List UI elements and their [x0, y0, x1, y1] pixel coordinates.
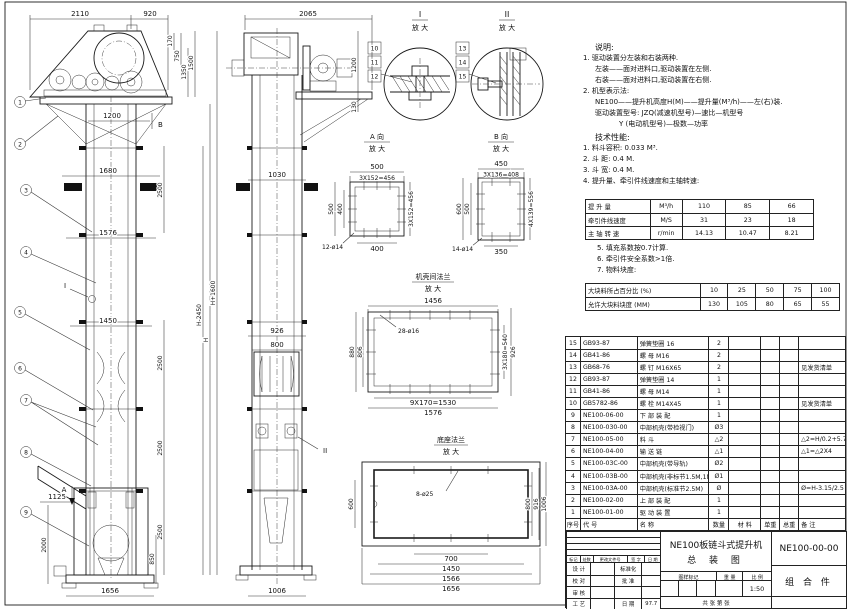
table-cell [760, 422, 779, 433]
table-cell [728, 350, 760, 361]
dim-label: 1680 [99, 167, 117, 175]
table-cell [760, 458, 779, 469]
dim-label: 2065 [299, 10, 317, 18]
title-block-empty-cell [771, 596, 847, 609]
table-row: 允许大块料块度 (MM)130105806555 [586, 297, 839, 310]
front-view-dim-labels: 2110 920 1200 B 1680 1576 1450 2500 2500… [41, 10, 217, 595]
weight-value-cell [715, 580, 743, 597]
mark-box-3 [696, 580, 716, 597]
table-cell: 见发货清单 [798, 398, 845, 409]
table-cell: NE100-06-00 [580, 410, 637, 421]
table-row: 11GB41-86螺 母 M141 [566, 385, 845, 397]
detail-title: II [505, 10, 510, 19]
balloon: 3 [24, 188, 28, 195]
table-cell: 螺 钉 M16X65 [637, 362, 709, 373]
table-cell [779, 507, 798, 518]
table-cell: NE100-02-00 [580, 495, 637, 506]
table-cell [798, 337, 845, 349]
dim-label: 926 [270, 327, 284, 335]
table-cell: 弹簧垫圈 16 [637, 337, 709, 349]
dim-label: 1350 [181, 64, 188, 79]
table-row: 8NE100-030-00中部机壳(带检视门)Ø3 [566, 421, 845, 433]
table-cell [641, 563, 660, 575]
table-cell: 材 料 [728, 519, 760, 530]
table-cell: 1 [566, 507, 580, 518]
mark-box-1 [660, 580, 679, 597]
note-line: 驱动装置型号: JZQ(减速机型号)—速比—机型号 [583, 108, 845, 119]
table-cell: 14.13 [682, 227, 726, 239]
table-cell: 中部机壳(带导轨) [637, 458, 709, 469]
post-notes-block: 5. 填充系数按0.7计算.6. 牵引件安全系数>1倍.7. 物料块度: [597, 243, 837, 276]
table-cell: NE100-03B-00 [580, 471, 637, 482]
table-cell: 批 准 [614, 576, 641, 587]
table-cell: 110 [682, 200, 726, 213]
table-cell [779, 350, 798, 361]
table-cell: 10.47 [725, 227, 769, 239]
table-cell: 97.7 [641, 599, 660, 609]
drawing-sheet: 2110 920 1200 B 1680 1576 1450 2500 2500… [0, 0, 850, 609]
view-title: 底座法兰 [437, 435, 465, 444]
drawing-number-cell: NE100-00-00 [771, 531, 847, 566]
notes-block: 说明:1. 驱动装置分左装和右装两种.左装——面对进料口,驱动装置在左侧.右装—… [583, 40, 845, 187]
dim-label: 1006 [541, 496, 548, 511]
balloon: 11 [371, 60, 379, 67]
table-cell: GB41-86 [580, 386, 637, 397]
view-title: 机壳间法兰 [416, 272, 451, 281]
dim-label: 750 [174, 50, 181, 62]
view-title: A 向 [370, 132, 384, 141]
table-cell: NE100-03A-00 [580, 483, 637, 494]
table-cell: 80 [755, 298, 783, 310]
table-cell: 13 [566, 362, 580, 373]
table-row: 大块料所占百分比 (%)10255075100 [586, 284, 839, 297]
side-view-dim-labels: 2065 1200 130 1030 926 800 1006 II [268, 10, 358, 595]
table-cell: 输 送 链 [637, 446, 709, 457]
table-cell: 中部机壳(带检视门) [637, 422, 709, 433]
dim-label: 3X136=408 [483, 172, 519, 179]
note-line: 右装——面对进料口,驱动装置在右侧. [583, 75, 845, 86]
table-cell: 2 [566, 495, 580, 506]
table-cell [728, 495, 760, 506]
dim-label: 170 [167, 35, 174, 47]
table-cell [728, 483, 760, 494]
balloon: 13 [459, 46, 467, 53]
table-cell [798, 374, 845, 385]
table-cell [779, 410, 798, 421]
speed-table: 提 升 量M³/h1108566牵引件线速度M/S312318主 轴 转 速r/… [585, 199, 814, 240]
table-row: 5NE100-03C-00中部机壳(带导轨)Ø2 [566, 457, 845, 469]
table-cell [779, 495, 798, 506]
table-cell [760, 374, 779, 385]
table-cell [641, 576, 660, 587]
table-cell [798, 422, 845, 433]
dim-label: 2500 [157, 182, 164, 197]
table-cell: 校 对 [567, 576, 590, 587]
dim-label: 1006 [268, 587, 286, 595]
table-cell: 螺 母 M14 [637, 386, 709, 397]
table-cell: 14 [566, 350, 580, 361]
dim-label: 916 [533, 498, 540, 510]
table-cell: 85 [725, 200, 769, 213]
table-cell [760, 386, 779, 397]
table-cell: 名 称 [637, 519, 709, 530]
note-line: 2. 斗 距: 0.4 M. [583, 154, 845, 165]
note-line: 1. 驱动装置分左装和右装两种. [583, 53, 845, 64]
table-cell [760, 398, 779, 409]
balloon: 2 [18, 142, 22, 149]
table-cell [728, 507, 760, 518]
table-cell [728, 410, 760, 421]
dim-label: 1576 [99, 229, 117, 237]
table-cell [779, 374, 798, 385]
table-cell: 牵引件线速度 [586, 214, 650, 226]
balloon: 5 [18, 310, 22, 317]
table-cell: 见发货清单 [798, 362, 845, 373]
table-cell: Ø=H-3.15/2.5 [798, 483, 845, 494]
dim-label: H [203, 338, 210, 343]
view-subtitle: 放 大 [443, 447, 459, 456]
table-cell: 25 [727, 284, 755, 297]
title-block-blank-rows [566, 531, 661, 556]
table-cell: Ø [708, 483, 728, 494]
dim-label: 1450 [99, 317, 117, 325]
table-cell: NE100-04-00 [580, 446, 637, 457]
dim-label: 1200 [103, 112, 121, 120]
table-cell: 18 [769, 214, 813, 226]
table-cell: GB68-76 [580, 362, 637, 373]
note-line: 说明: [583, 40, 845, 53]
table-row: 审 核 [567, 586, 660, 598]
note-line: 5. 填充系数按0.7计算. [597, 243, 837, 254]
table-row: 10GB5782-86螺 栓 M14X451见发货清单 [566, 397, 845, 409]
table-cell [798, 507, 845, 518]
table-row: 主 轴 转 速r/min14.1310.478.21 [586, 226, 813, 239]
drawing-subtitle: 总 装 图 [687, 553, 745, 566]
table-cell: 主 轴 转 速 [586, 227, 650, 239]
hole-callout: 14-ø14 [452, 246, 473, 253]
table-cell [728, 422, 760, 433]
table-cell: 2 [708, 362, 728, 373]
lump-size-table: 大块料所占百分比 (%)10255075100允许大块料块度 (MM)13010… [585, 283, 840, 311]
dim-label: 9X170=1530 [410, 399, 456, 407]
dim-label: 1500 [188, 55, 195, 70]
table-cell: 工 艺 [567, 599, 590, 609]
table-cell [798, 458, 845, 469]
dim-label: 1566 [442, 575, 460, 583]
table-cell: 1 [708, 410, 728, 421]
detail-subtitle: 放 大 [499, 23, 515, 32]
detail-subtitle: 放 大 [412, 23, 428, 32]
table-cell: 105 [727, 298, 755, 310]
dim-label: 1200 [351, 57, 358, 72]
table-cell [798, 495, 845, 506]
table-cell: 单重 [760, 519, 779, 530]
table-cell [728, 362, 760, 373]
mark-box-2 [678, 580, 697, 597]
hole-callout: 8-ø25 [416, 491, 433, 498]
table-cell: 螺 栓 M14X45 [637, 398, 709, 409]
dim-label: 350 [494, 248, 507, 256]
dim-label: 400 [337, 203, 344, 215]
drawing-title: NE100板链斗式提升机 [670, 538, 763, 551]
table-cell: 50 [755, 284, 783, 297]
table-cell: NE100-03C-00 [580, 458, 637, 469]
table-cell: 55 [811, 298, 839, 310]
table-cell [590, 587, 614, 598]
dim-label: 800 [270, 341, 283, 349]
dim-label: 500 [464, 203, 471, 215]
view-title: B 向 [494, 132, 508, 141]
table-cell: Ø1 [708, 471, 728, 482]
section-b-marker: B [158, 121, 163, 129]
table-row: 13GB68-76螺 钉 M16X652见发货清单 [566, 361, 845, 373]
table-cell: 65 [783, 298, 811, 310]
table-cell: GB93-87 [580, 337, 637, 349]
table-cell: 2 [708, 337, 728, 349]
table-cell: 螺 母 M16 [637, 350, 709, 361]
table-cell [728, 458, 760, 469]
note-line: 7. 物料块度: [597, 265, 837, 276]
table-cell: 10 [566, 398, 580, 409]
table-cell [728, 386, 760, 397]
table-cell [728, 446, 760, 457]
table-cell: 大块料所占百分比 (%) [586, 284, 700, 297]
note-line: 6. 牵引件安全系数>1倍. [597, 254, 837, 265]
table-cell: 130 [700, 298, 728, 310]
table-cell: 75 [783, 284, 811, 297]
view-subtitle: 放 大 [425, 284, 441, 293]
dim-label: 1576 [424, 409, 442, 417]
dim-label: 2110 [71, 10, 89, 18]
note-line: 技术性能: [583, 130, 845, 143]
table-cell: 总重 [779, 519, 798, 530]
table-cell: 4 [566, 471, 580, 482]
table-row: 2NE100-02-00上 部 装 配1 [566, 494, 845, 506]
table-cell: 日 期 [614, 599, 641, 609]
table-cell: 中部机壳(标准节2.5M) [637, 483, 709, 494]
table-cell [779, 362, 798, 373]
table-row: 12GB93-87弹簧垫圈 141 [566, 373, 845, 385]
scale-value-cell: 1:50 [742, 580, 772, 597]
table-cell: 允许大块料块度 (MM) [586, 298, 700, 310]
table-row: 序号代 号名 称数量材 料单重总重备 注 [566, 518, 845, 530]
table-cell: 料 斗 [637, 434, 709, 445]
table-row: 15GB93-87弹簧垫圈 162 [566, 337, 845, 349]
table-cell [779, 398, 798, 409]
table-cell: 1 [708, 398, 728, 409]
drawing-title-box: NE100板链斗式提升机 总 装 图 [660, 531, 772, 572]
base-view: 底座法兰 放 大 8-ø25 600 800 916 1006 700 1450… [348, 435, 548, 593]
balloon: 7 [24, 398, 28, 405]
table-cell [779, 471, 798, 482]
table-cell: 10 [700, 284, 728, 297]
table-cell [760, 471, 779, 482]
table-cell [779, 386, 798, 397]
table-cell: 100 [811, 284, 839, 297]
note-line: 4. 提升量、牵引件线速度和主轴转速: [583, 176, 845, 187]
table-cell: Ø2 [708, 458, 728, 469]
table-cell [760, 483, 779, 494]
table-cell: Ø3 [708, 422, 728, 433]
table-row: 牵引件线速度M/S312318 [586, 213, 813, 226]
table-cell: 驱 动 装 置 [637, 507, 709, 518]
detail-i-flag: I [64, 282, 66, 290]
table-cell: NE100-030-00 [580, 422, 637, 433]
table-cell [728, 337, 760, 349]
table-cell: 23 [725, 214, 769, 226]
note-line: 1. 料斗容积: 0.033 M³. [583, 143, 845, 154]
table-cell [760, 446, 779, 457]
table-cell: r/min [650, 227, 682, 239]
part-kind-cell: 组 合 件 [771, 565, 847, 597]
table-row: 3NE100-03A-00中部机壳(标准节2.5M)ØØ=H-3.15/2.5 [566, 482, 845, 494]
table-cell [641, 587, 660, 598]
table-cell: 1 [708, 507, 728, 518]
table-cell: 9 [566, 410, 580, 421]
signature-grid: 设 计标准化校 对批 准审 核工 艺日 期97.7 [566, 562, 661, 609]
table-cell [760, 507, 779, 518]
table-row: 14GB41-86螺 母 M162 [566, 349, 845, 361]
table-row: 提 升 量M³/h1108566 [586, 200, 813, 213]
view-subtitle: 放 大 [369, 144, 385, 153]
table-cell [728, 434, 760, 445]
table-cell: 弹簧垫圈 14 [637, 374, 709, 385]
balloon: 10 [371, 46, 379, 53]
balloon: 9 [24, 510, 28, 517]
dim-label: 500 [370, 163, 383, 171]
table-cell: 中部机壳(非标节1.5M,1M) [637, 471, 709, 482]
table-cell: 备 注 [798, 519, 845, 530]
table-cell: NE100-01-00 [580, 507, 637, 518]
note-line: Y (电动机型号)—极数—功率 [583, 119, 845, 130]
table-cell [798, 410, 845, 421]
table-cell [760, 434, 779, 445]
table-cell: NE100-05-00 [580, 434, 637, 445]
balloon: 1 [18, 100, 22, 107]
table-cell: 下 部 装 配 [637, 410, 709, 421]
front-view-linework [30, 15, 217, 596]
balloon: 6 [18, 366, 22, 373]
table-cell: 上 部 装 配 [637, 495, 709, 506]
dim-label: 1656 [101, 587, 119, 595]
table-cell: 8.21 [769, 227, 813, 239]
dim-label: 600 [456, 203, 463, 215]
table-cell: 1 [708, 374, 728, 385]
view-b: B 向 放 大 450 3X136=408 600 500 4X139=556 … [452, 132, 535, 256]
table-cell [728, 398, 760, 409]
section-a-marker: A [62, 486, 67, 494]
balloon: 12 [371, 74, 379, 81]
view-a: A 向 放 大 500 3X152=456 500 400 3X152=456 … [322, 132, 415, 253]
view-subtitle: 放 大 [493, 144, 509, 153]
table-cell [728, 471, 760, 482]
table-cell [779, 422, 798, 433]
table-cell: △2 [708, 434, 728, 445]
table-cell [760, 350, 779, 361]
dim-label: H+1600 [210, 280, 217, 305]
table-cell [760, 495, 779, 506]
note-line: 3. 斗 宽: 0.4 M. [583, 165, 845, 176]
note-line: 2. 机型表示法: [583, 86, 845, 97]
table-cell: 12 [566, 374, 580, 385]
dim-label: 3X180=540 [502, 334, 509, 370]
table-cell: GB93-87 [580, 374, 637, 385]
dim-label: 1030 [268, 171, 286, 179]
table-cell [779, 434, 798, 445]
table-cell: M³/h [650, 200, 682, 213]
dim-label: 2500 [157, 524, 164, 539]
dim-label: 700 [444, 555, 457, 563]
dim-label: 3X152=456 [359, 175, 395, 182]
table-cell: △1 [708, 446, 728, 457]
table-cell [590, 563, 614, 575]
table-cell [779, 446, 798, 457]
hole-callout: 28-ø16 [398, 328, 419, 335]
table-cell: 审 核 [567, 587, 590, 598]
table-cell [798, 350, 845, 361]
detail-title: I [419, 10, 421, 19]
dim-label: 1125 [48, 493, 66, 501]
note-line: NE100——提升机高度H(M)——提升量(M³/h)——左(右)装. [583, 97, 845, 108]
dim-label: 880 [349, 346, 356, 358]
table-cell: 序号 [566, 519, 580, 530]
sheet-count-cell: 共 张 第 张 [660, 596, 772, 609]
table-cell: 3 [566, 483, 580, 494]
dim-label: 1656 [442, 585, 460, 593]
table-cell [728, 374, 760, 385]
table-cell [760, 362, 779, 373]
table-cell: 7 [566, 434, 580, 445]
table-cell: △2=H/0.2+5.75 [798, 434, 845, 445]
table-cell: 5 [566, 458, 580, 469]
dim-label: 450 [494, 160, 507, 168]
table-cell: △1=△2X4 [798, 446, 845, 457]
table-cell: 1 [708, 495, 728, 506]
table-cell [760, 337, 779, 349]
dim-label: 2000 [41, 537, 48, 552]
note-line: 左装——面对进料口,驱动装置在左侧. [583, 64, 845, 75]
table-cell: M/S [650, 214, 682, 226]
dim-label: 850 [149, 553, 156, 565]
dim-label: 130 [351, 101, 358, 113]
table-cell: 6 [566, 446, 580, 457]
dim-label: 806 [357, 346, 364, 358]
table-row: 设 计标准化 [567, 563, 660, 575]
table-cell [614, 587, 641, 598]
table-cell [779, 458, 798, 469]
balloon: 8 [24, 450, 28, 457]
dim-label: 1450 [442, 565, 460, 573]
table-cell: 代 号 [580, 519, 637, 530]
title-block: 标记处数更改文件号签 字日 期 设 计标准化校 对批 准审 核工 艺日 期97.… [565, 530, 846, 608]
table-row: 工 艺日 期97.7 [567, 598, 660, 609]
table-cell: 数量 [708, 519, 728, 530]
dim-label: 2500 [157, 440, 164, 455]
table-row: 6NE100-04-00输 送 链△1△1=△2X4 [566, 445, 845, 457]
table-cell [779, 337, 798, 349]
dim-label: 1456 [424, 297, 442, 305]
table-cell: 66 [769, 200, 813, 213]
table-cell: GB41-86 [580, 350, 637, 361]
bom-table: 15GB93-87弹簧垫圈 16214GB41-86螺 母 M16213GB68… [565, 336, 846, 531]
balloon: 4 [24, 250, 28, 257]
table-row: 校 对批 准 [567, 575, 660, 587]
table-row: 1NE100-01-00驱 动 装 置1 [566, 506, 845, 518]
table-cell: 2 [708, 350, 728, 361]
table-cell: 标准化 [614, 563, 641, 575]
table-row: 4NE100-03B-00中部机壳(非标节1.5M,1M)Ø1 [566, 470, 845, 482]
dim-label: 400 [370, 245, 383, 253]
